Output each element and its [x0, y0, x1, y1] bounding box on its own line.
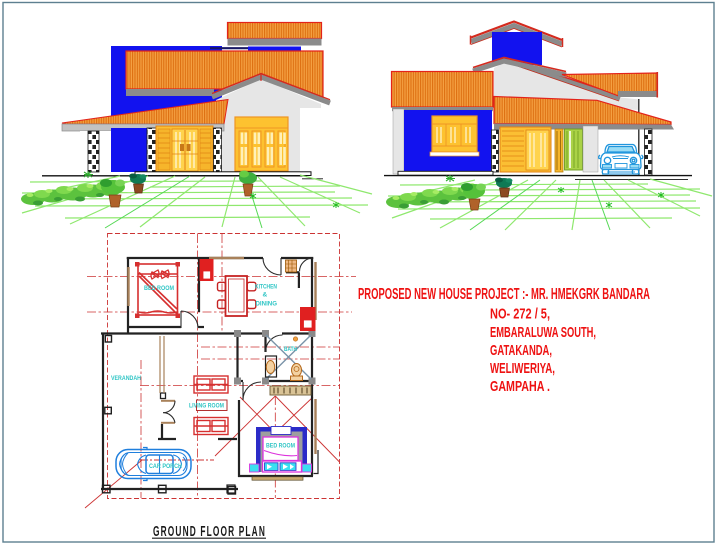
svg-text:KITCHEN: KITCHEN [255, 283, 277, 290]
svg-text:LIVING ROOM: LIVING ROOM [189, 403, 224, 410]
svg-text:GAMPAHA .: GAMPAHA . [490, 378, 550, 395]
svg-text:VERANDAH: VERANDAH [111, 375, 141, 382]
svg-text:PROPOSED NEW HOUSE PROJECT :-: PROPOSED NEW HOUSE PROJECT :- MR. HMEKGR… [358, 286, 650, 303]
svg-text:GROUND FLOOR PLAN: GROUND FLOOR PLAN [153, 524, 266, 540]
svg-text:NO- 272 / 5,: NO- 272 / 5, [490, 306, 550, 323]
svg-text:EMBARALUWA SOUTH,: EMBARALUWA SOUTH, [490, 324, 596, 341]
svg-text:BATH: BATH [284, 346, 297, 353]
svg-text:BED ROOM: BED ROOM [266, 443, 295, 450]
svg-text:CAR PORCH: CAR PORCH [149, 463, 182, 470]
svg-text:GATAKANDA,: GATAKANDA, [490, 342, 552, 359]
svg-text:BED ROOM: BED ROOM [144, 285, 174, 292]
svg-text:DINING: DINING [256, 301, 278, 308]
svg-text:WELIWERIYA,: WELIWERIYA, [490, 360, 555, 377]
svg-text:&: & [263, 292, 268, 299]
